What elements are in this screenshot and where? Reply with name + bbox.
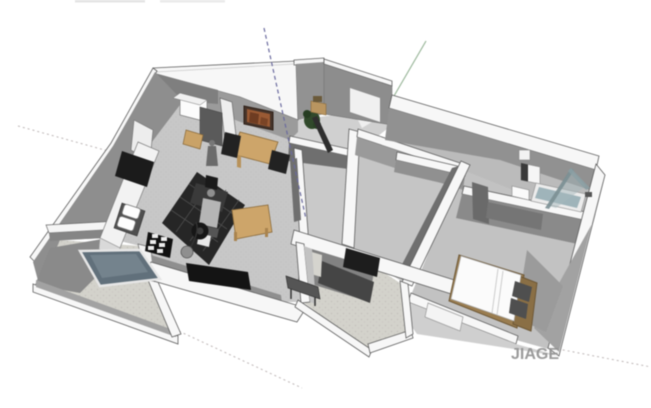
- svg-text:JIAGE: JIAGE: [511, 346, 559, 363]
